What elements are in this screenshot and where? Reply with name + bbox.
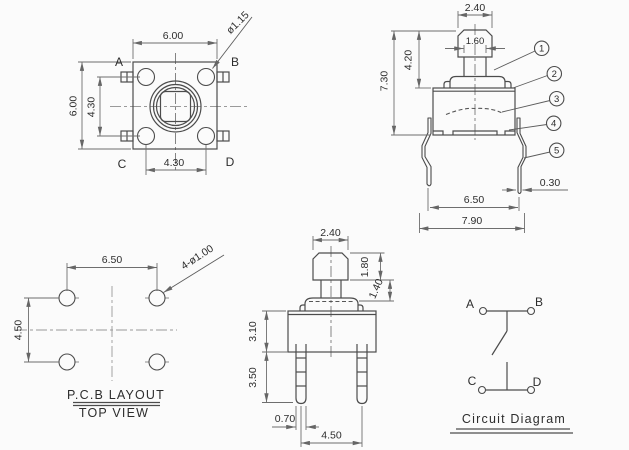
dim-pin-length: 3.50 [247,367,259,388]
dim-overall-width: 7.90 [462,215,483,227]
drawing-sheet: 6.00 ø1.15 6.00 4.30 4.30 A B C D [0,0,629,450]
flange-ear-right [358,305,363,311]
dim-stem-width: 1.60 [466,36,485,47]
flange-ear-right [505,82,511,89]
callout-5: 5 [554,146,559,157]
callout-1: 1 [539,44,544,55]
dim-body-height: 3.10 [247,321,259,342]
dim-cap-width: 2.40 [465,2,486,14]
top-view-caption: TOP VIEW [79,406,149,420]
terminal-b-node [528,308,535,315]
dim-leg-span: 6.50 [464,194,485,206]
callouts: 1 2 3 4 5 [494,41,564,158]
terminal-label-c: C [468,374,477,388]
dim-leg-thickness: 0.30 [540,177,561,189]
pcb-layout-caption: P.C.B LAYOUT [67,388,165,402]
flange-ear-left [300,305,305,311]
callout-4: 4 [551,119,556,130]
corner-tab-left [433,131,443,135]
terminal-label-d: D [533,375,542,389]
dim-cap-height: 1.80 [359,257,371,278]
pin-label-a: A [115,55,123,69]
terminal-label-b: B [535,295,543,309]
dome-contact-hidden-line [446,108,503,114]
plunger-flange [305,298,358,311]
terminal-label-a: A [466,297,474,311]
mounting-leg-right [517,118,526,194]
terminal-d-node [528,387,535,394]
corner-tab-right [505,131,515,135]
mounting-leg-left [422,118,431,186]
side-view: 2.40 1.80 1.40 3.10 3.50 0.70 4.50 [247,227,394,447]
circuit-caption: Circuit Diagram [462,412,566,426]
pin-label-c: C [118,157,127,171]
switch-arm-open [492,331,507,355]
dim-hole-span-vertical: 4.50 [13,320,25,341]
terminal-c-node [479,387,486,394]
dim-pin-span-horizontal: 4.30 [164,157,185,169]
dim-pin-span-vertical: 4.30 [86,97,98,118]
plunger-cap [313,253,348,280]
front-view: 2.40 1.60 7.30 4.20 1 2 3 4 [379,2,569,233]
dim-pin-width: 0.70 [275,413,296,425]
callout-2: 2 [552,69,557,80]
flange-ear-left [444,82,450,89]
dim-total-height: 7.30 [379,71,391,92]
plunger-flange [450,77,505,89]
dim-pin-span: 4.50 [321,430,342,442]
dim-plunger-height: 4.20 [403,50,415,71]
tactile-switch-dimensional-drawing: 6.00 ø1.15 6.00 4.30 4.30 A B C D [0,0,629,450]
dim-hole-span-horizontal: 6.50 [102,254,123,266]
pcb-layout-view: 6.50 4-ø1.00 4.50 P.C.B LAYOUT TOP VIEW [13,243,225,420]
callout-3: 3 [554,94,559,105]
dim-top-width: 6.00 [163,30,184,42]
pin-label-d: D [226,155,235,169]
dim-cap-width: 2.40 [320,227,341,239]
dim-hole-callout: 4-ø1.00 [179,243,216,273]
dim-left-height: 6.00 [68,96,80,117]
terminal-a-node [480,308,487,315]
pin-label-b: B [231,55,239,69]
through-hole-pins [296,344,367,404]
switch-body [288,311,376,352]
top-view: 6.00 ø1.15 6.00 4.30 4.30 A B C D [68,9,253,175]
circuit-diagram-view: A B C D Circuit Diagram [450,295,573,433]
